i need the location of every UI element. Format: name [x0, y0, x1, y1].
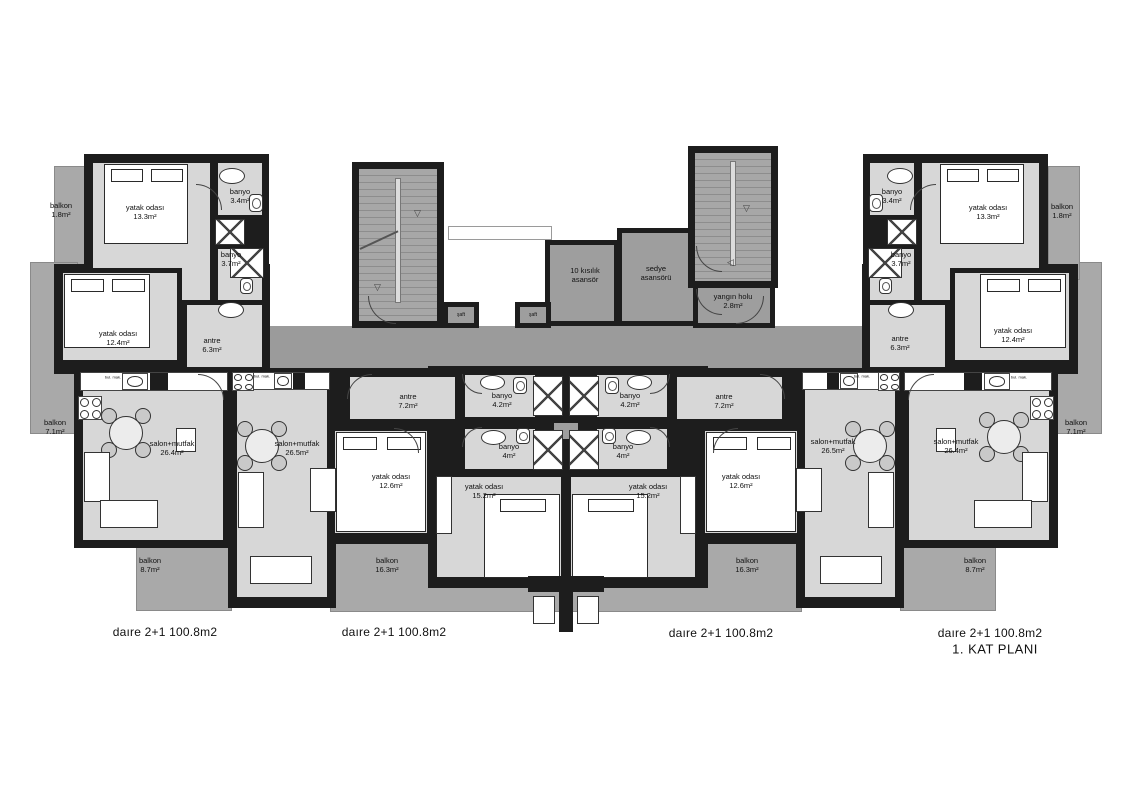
entrance-step: [448, 226, 552, 240]
label-salon-264-sag: salon+mutfak26.4m²: [934, 437, 979, 455]
label-antre-72-sag: antre7.2m²: [714, 392, 733, 410]
label-yatak-152-sag: yatak odası15.2m²: [629, 482, 667, 500]
shower: [533, 430, 563, 470]
label-yatak-133-sag: yatak odası13.3m²: [969, 203, 1007, 221]
dining-table: [987, 420, 1021, 454]
dining-table: [109, 416, 143, 450]
label-yatak-126-sol: yatak odası12.6m²: [372, 472, 410, 490]
shower: [569, 430, 599, 470]
toilet: [513, 377, 527, 394]
label-balkon-18-sol: balkon1.8m²: [50, 201, 72, 219]
apartment-caption-3: daıre 2+1 100.8m2: [669, 626, 773, 640]
label-antre-72-sol: antre7.2m²: [398, 392, 417, 410]
furniture-box: [238, 472, 264, 528]
shower: [569, 376, 599, 416]
tiny-appliance-label: bul. mak.: [1011, 376, 1027, 381]
floor-plan: balkon1.8m²balkon7.1m²balkon8.7m²balkon1…: [0, 0, 1132, 800]
bed: [484, 494, 560, 578]
shower: [215, 219, 245, 245]
label-sedye-asansoru: sedyeasansörü: [641, 264, 672, 282]
direction-arrow: ▽: [414, 209, 421, 218]
furniture-box: [974, 500, 1032, 528]
apartment-caption-2: daıre 2+1 100.8m2: [342, 625, 446, 639]
furniture-box: [100, 500, 158, 528]
balcony-balkon-87-sag: [900, 545, 996, 611]
kitchen-sink: [984, 373, 1010, 390]
label-yatak-124-sol: yatak odası12.4m²: [99, 329, 137, 347]
furniture-box: [1022, 452, 1048, 502]
label-banyo-4-sol: banyo4m²: [499, 442, 519, 460]
label-yangin-holu: yangın holu2.8m²: [714, 292, 753, 310]
balcony-balkon-87-sol: [136, 545, 232, 611]
furniture-box: [310, 468, 336, 512]
furniture-box: [820, 556, 882, 584]
washbasin: [218, 302, 244, 318]
dining-table: [853, 429, 887, 463]
wall-block: [867, 218, 885, 246]
wall-block: [150, 373, 168, 390]
label-yatak-152-sol: yatak odası15.2m²: [465, 482, 503, 500]
wall-block: [247, 218, 265, 246]
washbasin: [887, 168, 913, 184]
wall-block: [964, 373, 982, 390]
stove-burners: [878, 372, 900, 391]
tiny-appliance-label: bul. mak.: [105, 376, 121, 381]
toilet: [605, 377, 619, 394]
label-salon-265-sag: salon+mutfak26.5m²: [811, 437, 856, 455]
tiny-appliance-label: bul. mak.: [254, 375, 270, 380]
label-balkon-163-sol: balkon16.3m²: [375, 556, 398, 574]
apartment-caption-4: daıre 2+1 100.8m2: [938, 626, 1042, 640]
toilet: [240, 278, 253, 294]
label-balkon-18-sag: balkon1.8m²: [1051, 202, 1073, 220]
furniture-box: [84, 452, 110, 502]
tiny-appliance-label: bul. mak.: [854, 375, 870, 380]
toilet: [879, 278, 892, 294]
direction-arrow: ▽: [374, 283, 381, 292]
label-banyo-34-sag: banyo3.4m²: [882, 187, 902, 205]
furniture-box: [533, 596, 555, 624]
label-salon-264-sol: salon+mutfak26.4m²: [150, 439, 195, 457]
furniture-box: [868, 472, 894, 528]
label-yatak-124-sag: yatak odası12.4m²: [994, 326, 1032, 344]
kitchen-sink: [274, 373, 292, 389]
label-banyo-37-sag: banyo3.7m²: [891, 250, 911, 268]
label-salon-265-sol: salon+mutfak26.5m²: [275, 439, 320, 457]
label-antre-63-sag: antre6.3m²: [890, 334, 909, 352]
label-banyo-37-sol: banyo3.7m²: [221, 250, 241, 268]
label-saft-2: şaft: [529, 312, 537, 318]
label-balkon-71-sag: balkon7.1m²: [1065, 418, 1087, 436]
label-saft-1: şaft: [457, 312, 465, 318]
label-balkon-163-sag: balkon16.3m²: [735, 556, 758, 574]
shower: [533, 376, 563, 416]
washbasin: [888, 302, 914, 318]
furniture-box: [250, 556, 312, 584]
furniture-box: [796, 468, 822, 512]
wall-block: [293, 373, 305, 389]
direction-arrow: ▽: [743, 204, 750, 213]
bed: [572, 494, 648, 578]
wall-block: [827, 373, 839, 389]
furniture-box: [436, 476, 452, 534]
label-antre-63-sol: antre6.3m²: [202, 336, 221, 354]
furniture-box: [680, 476, 696, 534]
washbasin: [480, 375, 505, 390]
stove-burners: [78, 396, 102, 420]
shower: [887, 219, 917, 245]
label-asansor-10: 10 kısılıkasansör: [570, 266, 600, 284]
label-balkon-87-sag: balkon8.7m²: [964, 556, 986, 574]
floor-plan-title: 1. KAT PLANI: [952, 642, 1038, 657]
direction-arrow: ◁: [727, 258, 734, 267]
label-yatak-133-sol: yatak odası13.3m²: [126, 203, 164, 221]
label-banyo-42-sag: banyo4.2m²: [620, 391, 640, 409]
label-balkon-71-sol: balkon7.1m²: [44, 418, 66, 436]
label-banyo-42-sol: banyo4.2m²: [492, 391, 512, 409]
kitchen-sink: [122, 373, 148, 390]
washbasin: [627, 375, 652, 390]
furniture-box: [577, 596, 599, 624]
apartment-caption-1: daıre 2+1 100.8m2: [113, 625, 217, 639]
stove-burners: [232, 372, 254, 391]
washbasin: [219, 168, 245, 184]
label-yatak-126-sag: yatak odası12.6m²: [722, 472, 760, 490]
toilet: [249, 194, 263, 212]
label-banyo-34-sol: banyo3.4m²: [230, 187, 250, 205]
label-banyo-4-sag: banyo4m²: [613, 442, 633, 460]
stove-burners: [1030, 396, 1054, 420]
label-balkon-87-sol: balkon8.7m²: [139, 556, 161, 574]
wall-block: [559, 588, 573, 632]
balcony-balkon-18-sag: [1048, 166, 1080, 280]
